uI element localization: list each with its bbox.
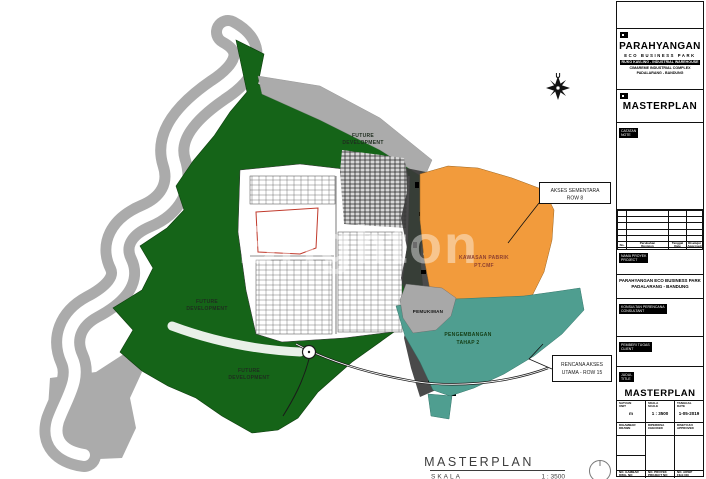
titleblock-notes: CATATANNOTE [617, 122, 703, 209]
revision-table: No. PerubahanRevision TanggalDate Disetu… [617, 209, 703, 247]
project-section: NAMA PROYEKPROJECT [617, 247, 703, 274]
watermark: Brighton [238, 215, 479, 275]
notes-chip: CATATANNOTE [619, 128, 638, 138]
scale-label: SKALA [431, 474, 462, 479]
signature-cells [617, 435, 703, 470]
map-caption: MASTERPLAN SKALA 1 : 3500 [424, 455, 610, 479]
settlement-label: PEMUKIMAN [413, 309, 443, 314]
consultant-chip: KONSULTAN PERENCANACONSULTANT [619, 304, 667, 314]
masterplan-map: Brighton FUTURE DEVELOPMENT FUTURE DEVEL… [0, 0, 706, 479]
fields-row-bottom: NO. GAMBARDWG. NO NO. PROYEKPROJECT NO N… [617, 470, 703, 478]
project-location: PADALARANG - BANDUNG [617, 284, 703, 290]
consultant-section: KONSULTAN PERENCANACONSULTANT [617, 298, 703, 336]
factory-label: PT.CMF [474, 263, 494, 269]
title-chip: JUDULTITLE [619, 372, 634, 382]
brand-logo-icon [620, 32, 628, 38]
project-name-box: PARAHYANGAN ECO BUSINESS PARK PADALARANG… [617, 274, 703, 298]
drawing-title: MASTERPLAN [617, 388, 703, 399]
brand-name: PARAHYANGAN [617, 41, 703, 52]
fields-row-b: DIGAMBARDRAWN DIPERIKSACHECKED DISETUJUI… [617, 422, 703, 435]
titleblock-doc-title: MASTERPLAN [617, 89, 703, 122]
unit-value: m [617, 411, 645, 416]
scale-value: 1 : 3500 [542, 474, 566, 479]
future-development-label: FUTURE [196, 299, 218, 305]
future-development-label: FUTURE [238, 368, 260, 374]
factory-label: KAWASAN PABRIK [459, 255, 509, 261]
future-development-label: DEVELOPMENT [228, 375, 269, 381]
future-development-label: DEVELOPMENT [186, 306, 227, 312]
phase2-label: TAHAP 2 [456, 340, 479, 346]
brand-complex: CIMAREME INDUSTRIAL COMPLEX [617, 66, 703, 70]
project-name: PARAHYANGAN ECO BUSINESS PARK [617, 278, 703, 284]
doc-logo-icon [620, 93, 628, 99]
date-value: 1-05-2019 [675, 411, 703, 416]
scale-value: 1 : 3500 [646, 411, 674, 416]
client-section: PEMBERI TUGASCLIENT [617, 336, 703, 366]
title-block: PARAHYANGAN ECO BUSINESS PARK RUKO KAVLI… [616, 1, 704, 477]
fields-row-a: SATUANUNIT m SKALASCALE 1 : 3500 TANGGAL… [617, 400, 703, 422]
client-chip: PEMBERI TUGASCLIENT [619, 342, 652, 352]
estate-block-plots [250, 176, 335, 204]
svg-text:ROW 8: ROW 8 [567, 196, 584, 202]
brand-bar: RUKO KAVLING - INDUSTRIAL WAREHOUSE [620, 60, 700, 65]
masterplan-drawing: Brighton FUTURE DEVELOPMENT FUTURE DEVEL… [0, 0, 706, 479]
compass-icon: U [546, 73, 570, 100]
svg-text:AKSES SEMENTARA: AKSES SEMENTARA [551, 188, 600, 194]
svg-text:UTAMA - ROW 15: UTAMA - ROW 15 [562, 370, 603, 376]
project-chip: NAMA PROYEKPROJECT [619, 253, 648, 263]
titleblock-top-box [617, 2, 703, 28]
brand-park: ECO BUSINESS PARK [617, 53, 703, 58]
future-development-label: FUTURE [352, 133, 374, 139]
doc-title: MASTERPLAN [617, 101, 703, 112]
phase2-label: PENGEMBANGAN [444, 332, 491, 338]
brand-city: PADALARANG - BANDUNG [617, 71, 703, 75]
svg-text:RENCANA AKSES: RENCANA AKSES [561, 362, 604, 368]
drawing-title-section: JUDULTITLE MASTERPLAN [617, 366, 703, 400]
future-development-label: DEVELOPMENT [342, 140, 383, 146]
map-title: MASTERPLAN [424, 455, 534, 469]
titleblock-brand: PARAHYANGAN ECO BUSINESS PARK RUKO KAVLI… [617, 28, 703, 89]
